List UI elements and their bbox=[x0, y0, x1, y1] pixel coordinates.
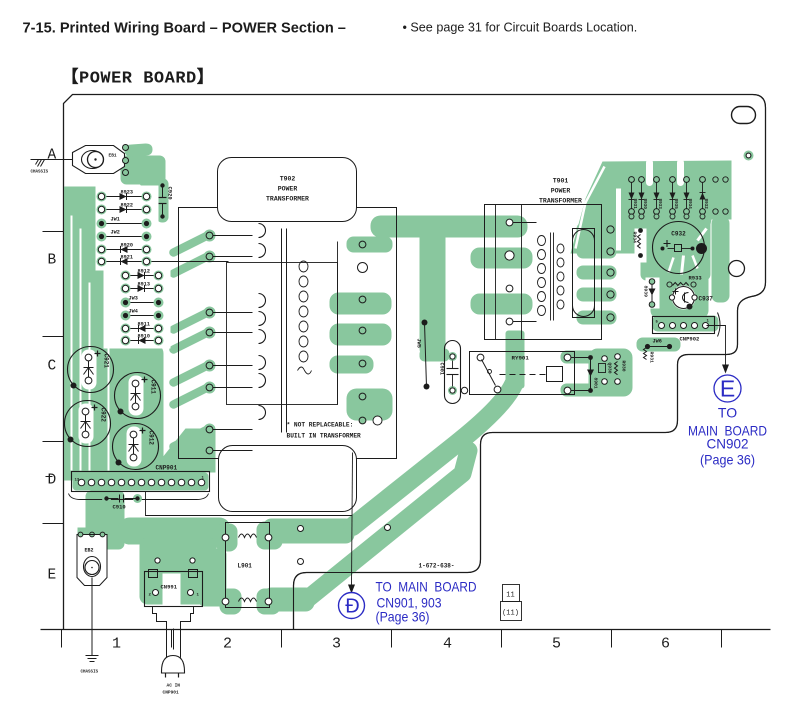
svg-text:E: E bbox=[720, 376, 735, 402]
svg-text:8934: 8934 bbox=[687, 199, 692, 210]
svg-text:8930: 8930 bbox=[642, 199, 647, 210]
svg-text:• See page 31 for Circuit Boar: • See page 31 for Circuit Boards Locatio… bbox=[403, 21, 638, 35]
svg-text:C920: C920 bbox=[167, 187, 174, 200]
svg-text:B: B bbox=[48, 253, 57, 269]
svg-text:D: D bbox=[48, 473, 57, 489]
svg-text:JW5: JW5 bbox=[416, 339, 422, 348]
svg-text:R930: R930 bbox=[621, 361, 627, 372]
svg-text:5: 5 bbox=[552, 636, 561, 653]
svg-text:JW1: JW1 bbox=[111, 217, 120, 223]
svg-text:EB2: EB2 bbox=[85, 548, 94, 554]
svg-text:R933: R933 bbox=[689, 275, 703, 282]
svg-text:A: A bbox=[48, 148, 57, 164]
svg-text:L901: L901 bbox=[238, 563, 253, 570]
svg-text:C937: C937 bbox=[699, 296, 714, 303]
svg-text:EB1: EB1 bbox=[109, 153, 117, 159]
svg-text:8931: 8931 bbox=[632, 199, 637, 210]
svg-text:AC IN: AC IN bbox=[167, 683, 181, 689]
svg-text:C932: C932 bbox=[671, 231, 686, 238]
svg-text:JW2: JW2 bbox=[111, 230, 120, 236]
svg-text:CN902: CN902 bbox=[707, 436, 749, 452]
svg-text:JW4: JW4 bbox=[129, 309, 138, 315]
svg-text:TRANSFORMER: TRANSFORMER bbox=[266, 196, 309, 203]
svg-text:POWER: POWER bbox=[551, 188, 571, 195]
svg-text:4: 4 bbox=[443, 636, 452, 653]
svg-text:C912: C912 bbox=[148, 431, 155, 446]
svg-text:1: 1 bbox=[112, 636, 121, 653]
svg-text:11: 11 bbox=[506, 592, 514, 600]
svg-text:TO MAIN BOARD: TO MAIN BOARD bbox=[376, 579, 477, 595]
svg-text:C901: C901 bbox=[439, 363, 445, 375]
svg-text:8932: 8932 bbox=[703, 199, 708, 210]
svg-text:TO: TO bbox=[718, 405, 737, 421]
svg-text:R934: R934 bbox=[632, 232, 638, 244]
svg-text:Q930: Q930 bbox=[607, 363, 613, 374]
svg-text:JW6: JW6 bbox=[653, 339, 662, 345]
svg-text:CNP901: CNP901 bbox=[163, 690, 180, 696]
svg-text:2: 2 bbox=[223, 636, 232, 653]
svg-text:CN991: CN991 bbox=[161, 584, 178, 591]
svg-text:6: 6 bbox=[661, 636, 670, 653]
svg-text:Ð: Ð bbox=[345, 596, 359, 618]
svg-text:(Page 36): (Page 36) bbox=[376, 609, 430, 625]
svg-text:3: 3 bbox=[332, 636, 341, 653]
svg-text:(11): (11) bbox=[502, 610, 519, 618]
svg-text:【POWER BOARD】: 【POWER BOARD】 bbox=[62, 67, 215, 89]
svg-text:TRANSFORMER: TRANSFORMER bbox=[539, 198, 582, 205]
svg-text:E: E bbox=[48, 568, 57, 584]
svg-text:7-15. Printed Wiring Board – P: 7-15. Printed Wiring Board – POWER Secti… bbox=[23, 21, 346, 37]
svg-text:C911: C911 bbox=[150, 380, 157, 395]
svg-text:CHASSIS: CHASSIS bbox=[31, 171, 49, 175]
svg-text:C: C bbox=[48, 359, 57, 375]
svg-text:8939: 8939 bbox=[643, 286, 649, 298]
svg-text:CNP902: CNP902 bbox=[680, 336, 700, 343]
svg-text:C921: C921 bbox=[103, 354, 110, 369]
svg-text:(Page 36): (Page 36) bbox=[700, 452, 755, 468]
svg-text:JW3: JW3 bbox=[129, 296, 138, 302]
svg-text:R931: R931 bbox=[649, 352, 655, 364]
svg-text:RY901: RY901 bbox=[512, 355, 530, 362]
svg-text:T902: T902 bbox=[280, 176, 296, 183]
svg-text:8901: 8901 bbox=[593, 378, 599, 389]
svg-text:BUILT IN TRANSFORMER: BUILT IN TRANSFORMER bbox=[287, 433, 362, 440]
svg-text:1-672-638-: 1-672-638- bbox=[419, 563, 455, 570]
svg-text:CNP901: CNP901 bbox=[156, 465, 178, 472]
svg-text:CHASSIS: CHASSIS bbox=[81, 671, 99, 675]
svg-text:* NOT REPLACEABLE:: * NOT REPLACEABLE: bbox=[287, 422, 354, 429]
svg-text:C922: C922 bbox=[100, 408, 107, 423]
svg-text:POWER: POWER bbox=[278, 186, 298, 193]
svg-text:8933: 8933 bbox=[657, 199, 662, 210]
svg-text:T901: T901 bbox=[553, 178, 569, 185]
svg-text:C910: C910 bbox=[113, 504, 126, 511]
svg-text:8935: 8935 bbox=[673, 199, 678, 210]
